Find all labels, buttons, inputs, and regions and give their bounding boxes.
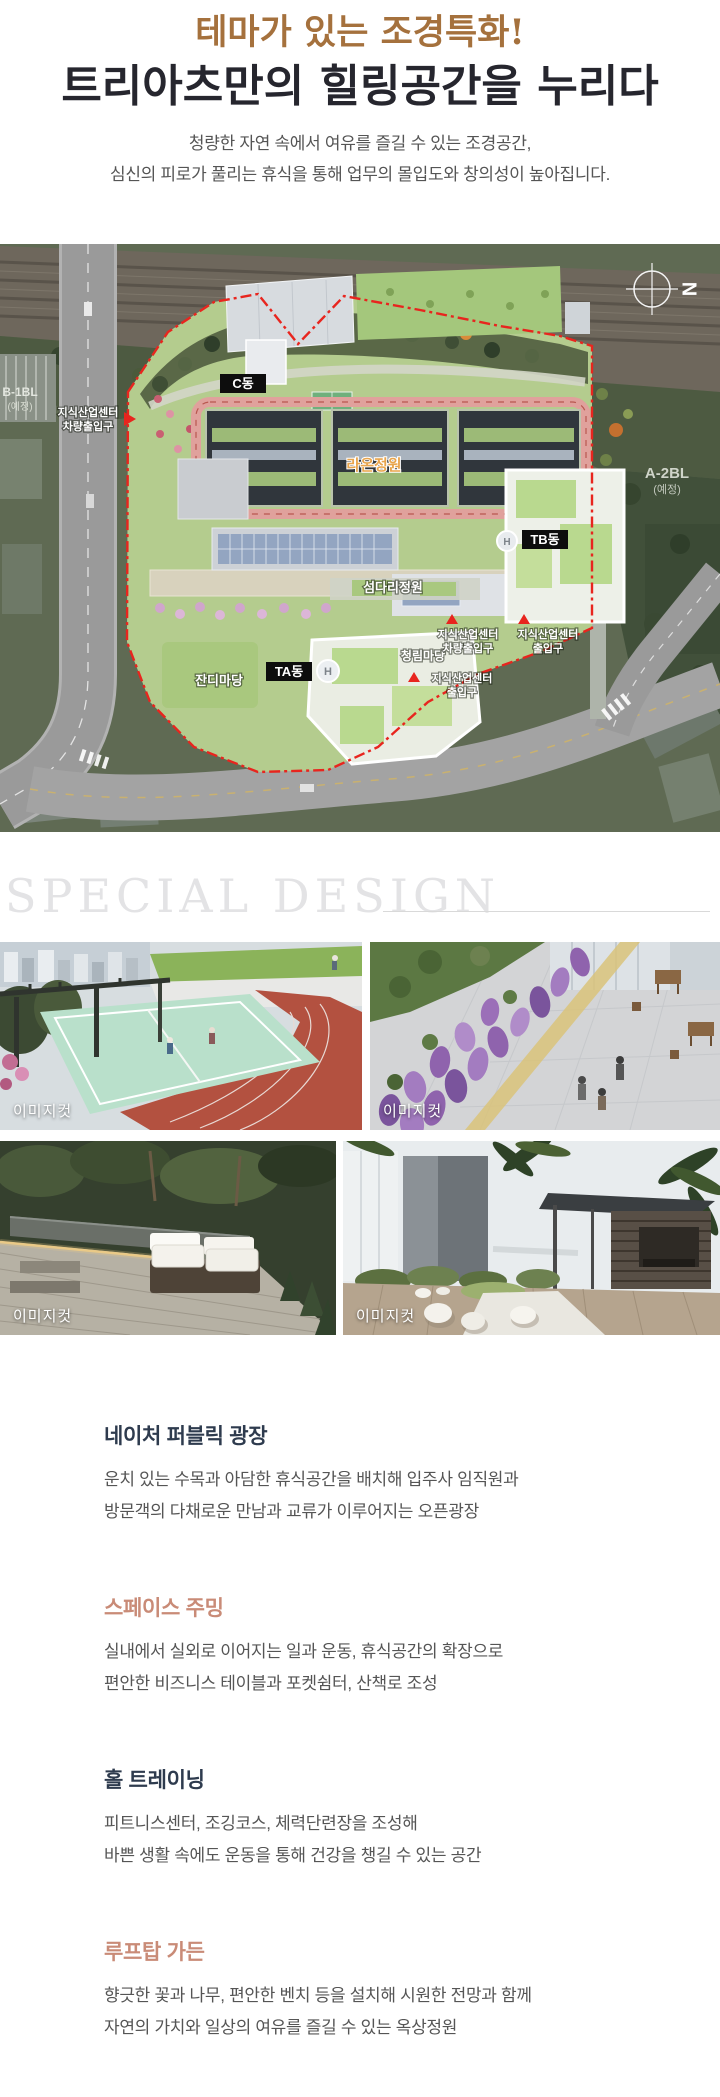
feature-body-line2: 바쁜 생활 속에도 운동을 통해 건강을 챙길 수 있는 공간 xyxy=(104,1846,481,1865)
label-a2bl: A-2BL xyxy=(645,465,689,482)
label-seomdari-garden: 섬다리정원 xyxy=(363,580,423,595)
gallery-photo-lavender-plaza: 이미지컷 xyxy=(370,942,720,1130)
gallery-photo-wood-deck: 이미지컷 xyxy=(0,1141,336,1335)
helipad-tb-letter: H xyxy=(503,537,510,548)
gallery-photo-sports-court: 이미지컷 xyxy=(0,942,362,1130)
feature-body: 피트니스센터, 조깅코스, 체력단련장을 조성해 바쁜 생활 속에도 운동을 통… xyxy=(104,1808,664,1872)
feature-body: 실내에서 실외로 이어지는 일과 운동, 휴식공간의 확장으로 편안한 비즈니스… xyxy=(104,1636,664,1700)
feature-body-line1: 향긋한 꽃과 나무, 편안한 벤치 등을 설치해 시원한 전망과 함께 xyxy=(104,1986,532,2005)
label-b1bl: B-1BL xyxy=(2,385,37,399)
feature-heading: 루프탑 가든 xyxy=(104,1936,664,1966)
landing-page: 테마가 있는 조경특화! 트리아츠만의 힐링공간을 누리다 청량한 자연 속에서… xyxy=(0,0,720,2097)
image-cut-caption: 이미지컷 xyxy=(356,1305,415,1326)
entrance-b2-line1: 지식산업센터 xyxy=(518,627,579,641)
label-tb-dong: TB동 xyxy=(530,532,559,547)
feature-body-line1: 실내에서 실외로 이어지는 일과 운동, 휴식공간의 확장으로 xyxy=(104,1642,503,1661)
label-cheongnim-yard: 청림마당 xyxy=(401,648,445,663)
compass-north-letter: N xyxy=(678,282,700,296)
feature-body-line2: 자연의 가치와 일상의 여유를 즐길 수 있는 옥상정원 xyxy=(104,2018,457,2037)
divider-line xyxy=(383,911,710,912)
headline-accent: 테마가 있는 조경특화! xyxy=(0,4,720,55)
label-jandi-yard: 잔디마당 xyxy=(195,673,243,688)
helipad-ta-letter: H xyxy=(324,666,332,678)
feature-body: 운치 있는 수목과 아담한 휴식공간을 배치해 입주사 임직원과 방문객의 다채… xyxy=(104,1464,664,1528)
special-design-heading: SPECIAL DESIGN xyxy=(5,869,500,923)
feature-heading: 홀 트레이닝 xyxy=(104,1764,664,1794)
label-b1bl-note: (예정) xyxy=(7,401,32,413)
image-cut-caption: 이미지컷 xyxy=(13,1100,72,1121)
entrance-left-line2: 차량출입구 xyxy=(63,419,114,433)
entrance-left-line1: 지식산업센터 xyxy=(58,405,119,419)
feature-body: 향긋한 꽃과 나무, 편안한 벤치 등을 설치해 시원한 전망과 함께 자연의 … xyxy=(104,1980,664,2044)
feature-section-hall-training: 홀 트레이닝 피트니스센터, 조깅코스, 체력단련장을 조성해 바쁜 생활 속에… xyxy=(104,1764,664,1872)
image-cut-caption: 이미지컷 xyxy=(383,1100,442,1121)
feature-body-line2: 편안한 비즈니스 테이블과 포켓쉼터, 산책로 조성 xyxy=(104,1674,437,1693)
label-raon-garden: 라온정원 xyxy=(346,456,401,474)
feature-section-space-zooming: 스페이스 주밍 실내에서 실외로 이어지는 일과 운동, 휴식공간의 확장으로 … xyxy=(104,1592,664,1700)
subtitle-line-1: 청량한 자연 속에서 여유를 즐길 수 있는 조경공간, xyxy=(0,129,720,154)
feature-body-line1: 운치 있는 수목과 아담한 휴식공간을 배치해 입주사 임직원과 xyxy=(104,1470,518,1489)
site-plan-svg: H H N xyxy=(0,244,720,832)
feature-body-line2: 방문객의 다채로운 만남과 교류가 이루어지는 오픈광장 xyxy=(104,1502,479,1521)
headline-main: 트리아츠만의 힐링공간을 누리다 xyxy=(0,50,720,114)
feature-heading: 네이처 퍼블릭 광장 xyxy=(104,1420,664,1450)
label-a2bl-note: (예정) xyxy=(653,483,681,496)
entrance-b1-line2: 차량출입구 xyxy=(443,641,494,655)
feature-section-nature-public-plaza: 네이처 퍼블릭 광장 운치 있는 수목과 아담한 휴식공간을 배치해 입주사 임… xyxy=(104,1420,664,1528)
entrance-b3-line1: 지식산업센터 xyxy=(432,671,493,685)
site-plan-rendering: H H N xyxy=(0,244,720,832)
feature-body-line1: 피트니스센터, 조깅코스, 체력단련장을 조성해 xyxy=(104,1814,418,1833)
subtitle-line-2: 심신의 피로가 풀리는 휴식을 통해 업무의 몰입도와 창의성이 높아집니다. xyxy=(0,160,720,185)
image-cut-caption: 이미지컷 xyxy=(13,1305,72,1326)
entrance-b3-line2: 출입구 xyxy=(447,685,477,699)
entrance-b2-line2: 출입구 xyxy=(533,641,563,655)
entrance-b1-line1: 지식산업센터 xyxy=(438,627,499,641)
label-c-dong: C동 xyxy=(232,376,253,391)
label-ta-dong: TA동 xyxy=(275,664,303,679)
feature-section-rooftop-garden: 루프탑 가든 향긋한 꽃과 나무, 편안한 벤치 등을 설치해 시원한 전망과 … xyxy=(104,1936,664,2044)
gallery-photo-cabana: 이미지컷 xyxy=(343,1141,720,1335)
feature-heading: 스페이스 주밍 xyxy=(104,1592,664,1622)
